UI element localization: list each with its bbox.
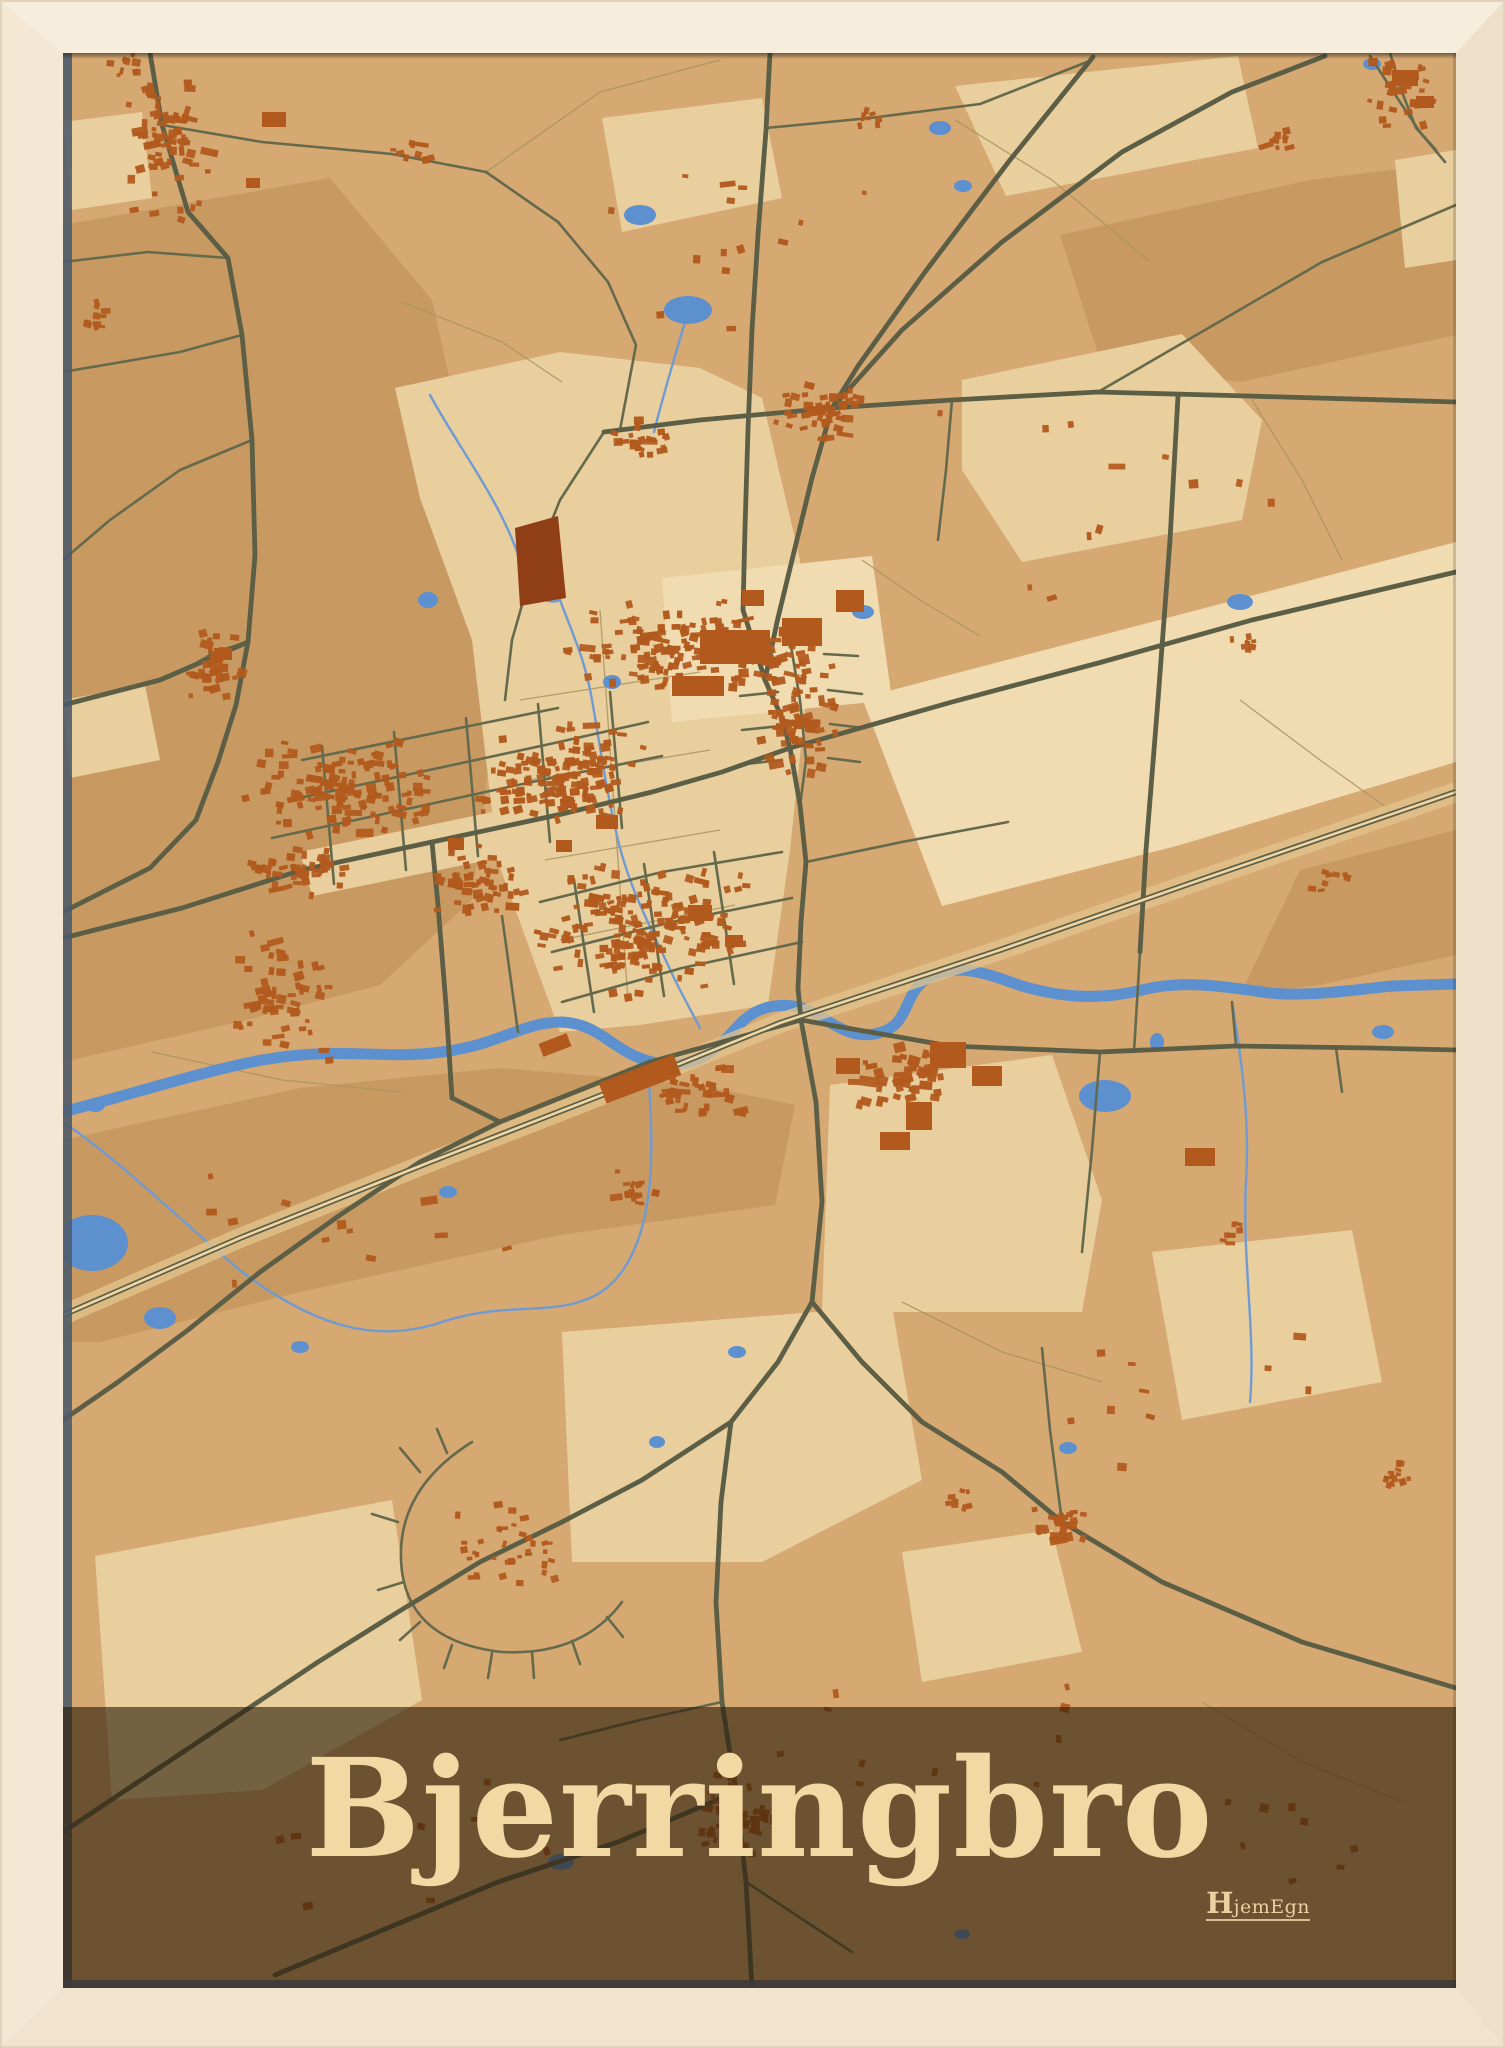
city-map [63, 53, 1456, 1988]
title-banner: Bjerringbro HjemEgn [63, 1707, 1456, 1988]
frame-inner-shadow-right [1453, 53, 1456, 1988]
logo-rest: jemEgn [1234, 1896, 1310, 1918]
logo-initial: H [1206, 1886, 1233, 1920]
poster-title: Bjerringbro [305, 1741, 1213, 1877]
map-poster: Bjerringbro HjemEgn [63, 53, 1456, 1988]
frame-inner-shadow-left [63, 53, 72, 1988]
framed-map-poster: Bjerringbro HjemEgn [0, 0, 1505, 2048]
frame-inner-shadow-top [63, 53, 1456, 59]
hjemegn-logo: HjemEgn [1206, 1889, 1310, 1921]
